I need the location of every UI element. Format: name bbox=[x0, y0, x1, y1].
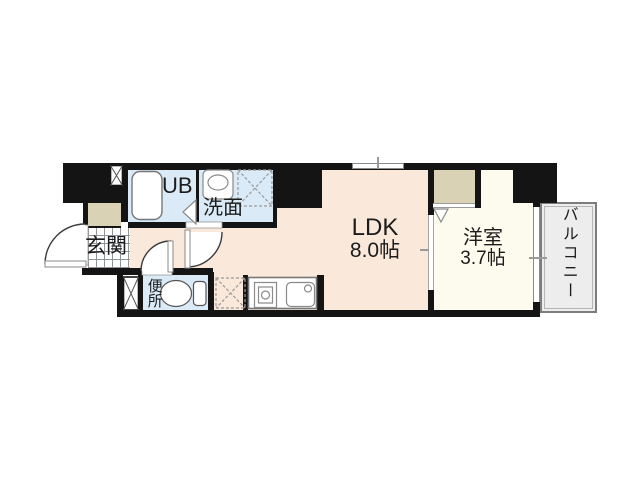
washbasin bbox=[203, 170, 233, 199]
ub-door-marker bbox=[183, 200, 196, 224]
washing-machine-pad bbox=[238, 170, 272, 206]
sink-drain bbox=[305, 285, 312, 292]
pipe-shaft-top bbox=[111, 166, 123, 186]
label-western-name: 洋室 bbox=[448, 228, 518, 249]
label-western-room: 洋室 3.7帖 bbox=[448, 228, 518, 269]
label-toilet: 便所 bbox=[146, 278, 162, 308]
label-balcony: バルコニー bbox=[559, 206, 576, 301]
toilet-door-leaf bbox=[168, 241, 173, 272]
label-western-size: 3.7帖 bbox=[448, 249, 518, 269]
kitchen-counter bbox=[249, 278, 317, 309]
label-genkan: 玄関 bbox=[85, 236, 127, 258]
label-ldk-name: LDK bbox=[335, 215, 415, 240]
closet-door-rail bbox=[433, 203, 475, 222]
washroom-door-threshold bbox=[186, 222, 222, 228]
refrigerator-pad bbox=[216, 278, 245, 308]
label-ldk-size: 8.0帖 bbox=[335, 240, 415, 262]
label-ldk: LDK 8.0帖 bbox=[335, 215, 415, 262]
label-unit-bath: UB bbox=[162, 174, 193, 197]
pipe-shaft-bottom bbox=[124, 277, 139, 310]
label-washroom: 洗面 bbox=[203, 198, 243, 219]
toilet-fixture bbox=[161, 281, 207, 307]
floorplan: 玄関 UB 洗面 便所 LDK 8.0帖 洋室 3.7帖 バルコニー bbox=[0, 0, 640, 480]
bathtub bbox=[132, 172, 162, 220]
entrance-door-leaf bbox=[45, 261, 86, 267]
closet-door-marker bbox=[434, 209, 448, 222]
washroom-door-leaf bbox=[185, 230, 190, 268]
